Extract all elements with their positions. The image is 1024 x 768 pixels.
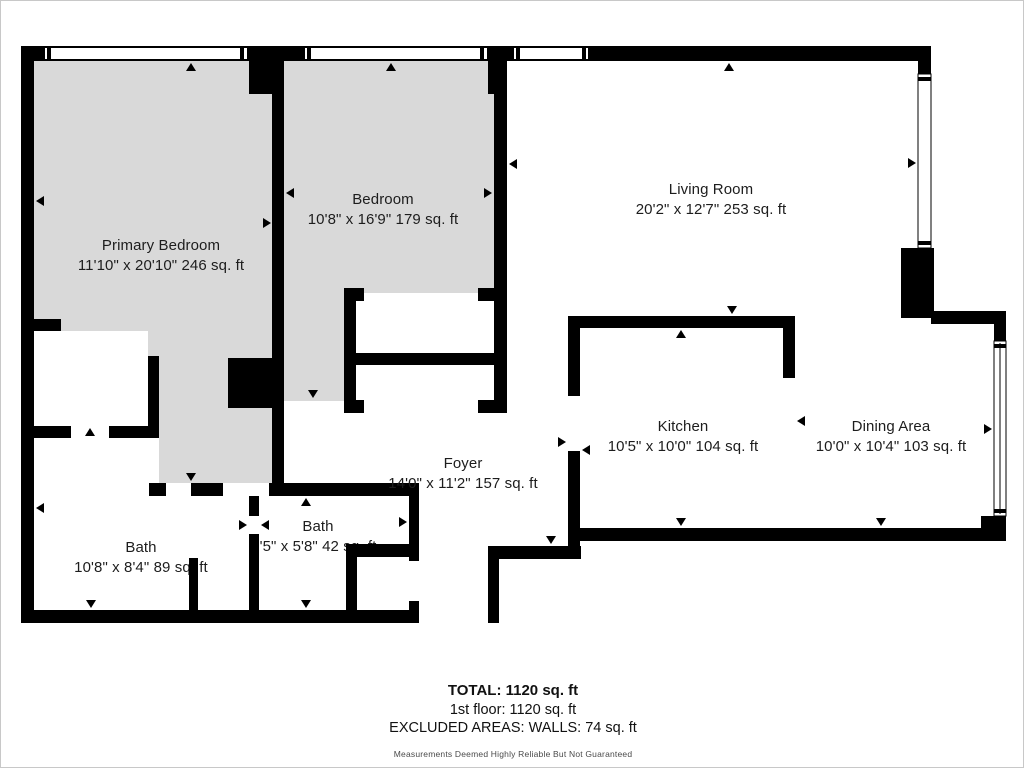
room-dims: 10'5" x 10'0" 104 sq. ft xyxy=(563,437,803,457)
excluded-area-text: EXCLUDED AREAS: WALLS: 74 sq. ft xyxy=(1,719,1024,738)
area-summary: TOTAL: 1120 sq. ft 1st floor: 1120 sq. f… xyxy=(1,682,1024,763)
room-label-bath-2: Bath '5" x 5'8" 42 sq. ft xyxy=(198,517,438,557)
room-name: Kitchen xyxy=(563,417,803,437)
room-label-bedroom: Bedroom 10'8" x 16'9" 179 sq. ft xyxy=(263,190,503,230)
floor-plan-drawing xyxy=(1,1,1024,768)
room-name: Living Room xyxy=(591,180,831,200)
window-bedroom xyxy=(304,47,488,60)
window-living-room-top xyxy=(513,47,589,60)
total-area-text: TOTAL: 1120 sq. ft xyxy=(1,682,1024,701)
room-name: Bedroom xyxy=(263,190,503,210)
room-label-foyer: Foyer 14'0" x 11'2" 157 sq. ft xyxy=(343,454,583,494)
floor-area-text: 1st floor: 1120 sq. ft xyxy=(1,701,1024,720)
room-name: Foyer xyxy=(343,454,583,474)
room-dims: 10'0" x 10'4" 103 sq. ft xyxy=(771,437,1011,457)
nook-fill xyxy=(34,331,148,426)
room-name: Bath xyxy=(198,517,438,537)
floor-plan-page: Primary Bedroom 11'10" x 20'10" 246 sq. … xyxy=(0,0,1024,768)
room-name: Dining Area xyxy=(771,417,1011,437)
room-dims: 10'8" x 16'9" 179 sq. ft xyxy=(263,210,503,230)
room-dims: 11'10" x 20'10" 246 sq. ft xyxy=(41,256,281,276)
room-label-living-room: Living Room 20'2" x 12'7" 253 sq. ft xyxy=(591,180,831,220)
room-dims: 20'2" x 12'7" 253 sq. ft xyxy=(591,200,831,220)
room-label-kitchen: Kitchen 10'5" x 10'0" 104 sq. ft xyxy=(563,417,803,457)
room-dims: 14'0" x 11'2" 157 sq. ft xyxy=(343,474,583,494)
room-label-primary-bedroom: Primary Bedroom 11'10" x 20'10" 246 sq. … xyxy=(41,236,281,276)
room-dims: 10'8" x 8'4" 89 sq. ft xyxy=(21,558,261,578)
window-living-room-right xyxy=(918,74,931,248)
room-label-dining-area: Dining Area 10'0" x 10'4" 103 sq. ft xyxy=(771,417,1011,457)
window-primary-bedroom xyxy=(44,47,248,60)
room-name: Primary Bedroom xyxy=(41,236,281,256)
room-dims: '5" x 5'8" 42 sq. ft xyxy=(198,537,438,557)
disclaimer-text: Measurements Deemed Highly Reliable But … xyxy=(1,745,1024,764)
